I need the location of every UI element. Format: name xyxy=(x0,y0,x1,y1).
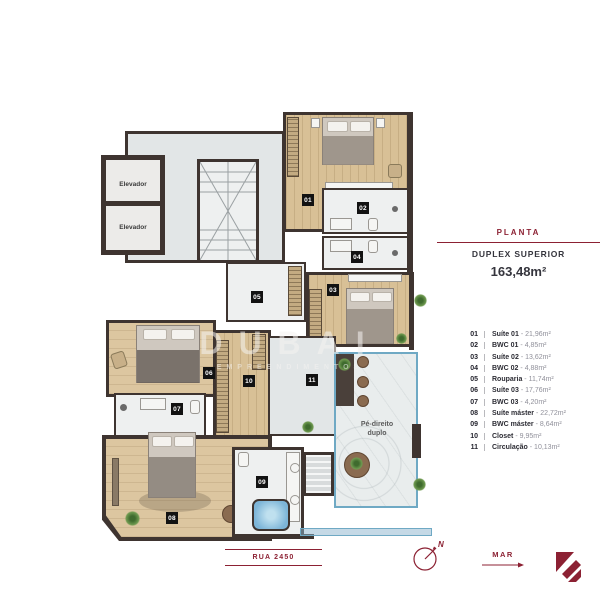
nightstand xyxy=(311,118,320,128)
stair-lines-icon xyxy=(200,162,256,260)
legend-name: Circulação xyxy=(492,444,528,451)
marker-08: 08 xyxy=(166,512,178,524)
wardrobe-suite-02 xyxy=(309,289,322,343)
legend-name: Suíte 02 xyxy=(492,354,519,361)
plant-icon xyxy=(302,421,314,433)
marker-06: 06 xyxy=(203,367,215,379)
double-height-label: Pé-direito duplo xyxy=(346,420,408,438)
legend-area: 4,20m² xyxy=(525,399,547,406)
wardrobe-closet-right xyxy=(252,334,266,370)
sink-bwc-03 xyxy=(140,398,166,410)
legend-row: 02BWC 01 - 4,85m² xyxy=(458,342,600,353)
double-height-line2: duplo xyxy=(367,430,386,437)
compass-icon: N xyxy=(408,538,448,578)
legend-area: 10,13m² xyxy=(534,444,560,451)
marker-07: 07 xyxy=(171,403,183,415)
legend-num: 11 xyxy=(458,444,484,451)
legend-name: Suíte 01 xyxy=(492,331,519,338)
shower-bwc-03 xyxy=(120,404,127,411)
toilet-bwc-master xyxy=(238,452,249,467)
plant-icon xyxy=(414,294,427,307)
armchair xyxy=(388,164,402,178)
legend-row: 08Suíte máster - 22,72m² xyxy=(458,410,600,421)
legend-area: 17,76m² xyxy=(525,387,551,394)
bed-suite-01 xyxy=(322,117,374,165)
toilet-bwc-02 xyxy=(368,240,378,253)
legend-sep: - xyxy=(536,410,538,417)
legend-area: 8,64m² xyxy=(540,421,562,428)
bed-suite-03 xyxy=(136,325,200,383)
legend-area: 22,72m² xyxy=(540,410,566,417)
legend-num: 03 xyxy=(458,354,484,361)
legend-name: Suíte 03 xyxy=(492,387,519,394)
jacuzzi xyxy=(252,499,290,531)
bar-stool xyxy=(357,356,369,368)
legend-sep: - xyxy=(520,399,522,406)
floorplan-page: Elevador Elevador xyxy=(0,0,600,600)
sea-label: MAR xyxy=(480,550,526,559)
legend-name: Suíte máster xyxy=(492,410,534,417)
legend-sep: - xyxy=(515,433,517,440)
bed-suite-02 xyxy=(346,288,394,344)
sink-bwc-02 xyxy=(330,240,352,252)
brand-logo xyxy=(554,550,584,584)
shelves-rouparia xyxy=(288,266,302,316)
marker-09: 09 xyxy=(256,476,268,488)
marker-04: 04 xyxy=(351,251,363,263)
marker-03: 03 xyxy=(327,284,339,296)
double-height-line1: Pé-direito xyxy=(361,421,393,428)
sink-bwc-01 xyxy=(330,218,352,230)
street-label-block: RUA 2450 xyxy=(225,549,322,566)
legend-name: Rouparia xyxy=(492,376,522,383)
marker-11: 11 xyxy=(306,374,318,386)
legend-num: 02 xyxy=(458,342,484,349)
legend-num: 01 xyxy=(458,331,484,338)
marker-01: 01 xyxy=(302,194,314,206)
toilet-bwc-01 xyxy=(368,218,378,231)
wardrobe-suite-01 xyxy=(287,117,299,177)
marker-02: 02 xyxy=(357,202,369,214)
legend-sep: - xyxy=(530,444,532,451)
legend-sep: - xyxy=(520,365,522,372)
info-panel: PLANTA DUPLEX SUPERIOR 163,48m² xyxy=(437,228,600,279)
legend-row: 07BWC 03 - 4,20m² xyxy=(458,399,600,410)
glass-railing xyxy=(300,528,432,536)
legend-name: BWC máster xyxy=(492,421,534,428)
marker-10: 10 xyxy=(243,375,255,387)
legend-name: BWC 01 xyxy=(492,342,518,349)
bar-stool xyxy=(357,395,369,407)
legend-row: 04BWC 02 - 4,88m² xyxy=(458,365,600,376)
plant-icon xyxy=(338,358,351,371)
street-label: RUA 2450 xyxy=(225,550,322,565)
legend-area: 21,96m² xyxy=(525,331,551,338)
street-rule-bottom xyxy=(225,565,322,566)
legend-sep: - xyxy=(536,421,538,428)
legend-name: BWC 02 xyxy=(492,365,518,372)
legend-num: 10 xyxy=(458,433,484,440)
plant-icon xyxy=(396,333,407,344)
legend-row: 06Suíte 03 - 17,76m² xyxy=(458,387,600,398)
plant-icon xyxy=(413,478,426,491)
legend-row: 05Rouparia - 11,74m² xyxy=(458,376,600,387)
compass-north-letter: N xyxy=(438,540,444,549)
panel-divider xyxy=(437,242,600,243)
desk-suite-02 xyxy=(348,274,402,282)
wardrobe-closet-left xyxy=(216,340,229,433)
bench xyxy=(112,458,119,506)
sea-arrow-icon xyxy=(480,559,526,571)
compass: N xyxy=(408,538,448,578)
legend-row: 11Circulação - 10,13m² xyxy=(458,444,600,455)
legend-area: 9,95m² xyxy=(520,433,542,440)
shower-bwc-02 xyxy=(392,250,398,256)
wall xyxy=(407,112,413,272)
wall xyxy=(412,424,421,458)
legend-num: 09 xyxy=(458,421,484,428)
legend-num: 06 xyxy=(458,387,484,394)
legend-num: 04 xyxy=(458,365,484,372)
elevator-2-label: Elevador xyxy=(106,224,160,231)
legend-area: 4,88m² xyxy=(525,365,547,372)
legend-area: 11,74m² xyxy=(529,376,554,383)
legend-sep: - xyxy=(520,342,522,349)
lower-stairs xyxy=(303,452,334,496)
legend-area: 13,62m² xyxy=(525,354,551,361)
panel-title: PLANTA xyxy=(437,228,600,237)
room-legend: 01Suíte 01 - 21,96m² 02BWC 01 - 4,85m² 0… xyxy=(458,331,600,455)
legend-sep: - xyxy=(521,387,523,394)
toilet-bwc-03 xyxy=(190,400,200,414)
legend-num: 08 xyxy=(458,410,484,417)
legend-num: 07 xyxy=(458,399,484,406)
total-area: 163,48m² xyxy=(437,264,600,279)
legend-name: BWC 03 xyxy=(492,399,518,406)
wall xyxy=(409,272,414,350)
unit-name: DUPLEX SUPERIOR xyxy=(437,249,600,259)
sea-direction-block: MAR xyxy=(480,550,526,571)
legend-row: 09BWC máster - 8,64m² xyxy=(458,421,600,432)
legend-sep: - xyxy=(521,331,523,338)
nightstand xyxy=(376,118,385,128)
stairwell xyxy=(197,159,259,263)
legend-name: Closet xyxy=(492,433,513,440)
legend-row: 01Suíte 01 - 21,96m² xyxy=(458,331,600,342)
legend-row: 10Closet - 9,95m² xyxy=(458,433,600,444)
brand-logo-icon xyxy=(554,550,584,584)
legend-sep: - xyxy=(524,376,526,383)
plant-icon xyxy=(350,457,363,470)
legend-row: 03Suíte 02 - 13,62m² xyxy=(458,354,600,365)
legend-num: 05 xyxy=(458,376,484,383)
room-circulacao xyxy=(268,336,336,436)
bed-suite-master xyxy=(148,432,196,498)
legend-sep: - xyxy=(521,354,523,361)
bar-stool xyxy=(357,376,369,388)
legend-area: 4,85m² xyxy=(525,342,547,349)
elevator-1-label: Elevador xyxy=(106,181,160,188)
marker-05: 05 xyxy=(251,291,263,303)
plant-icon xyxy=(125,511,140,526)
elevator-divider-wall xyxy=(104,201,162,206)
shower-bwc-01 xyxy=(392,206,398,212)
